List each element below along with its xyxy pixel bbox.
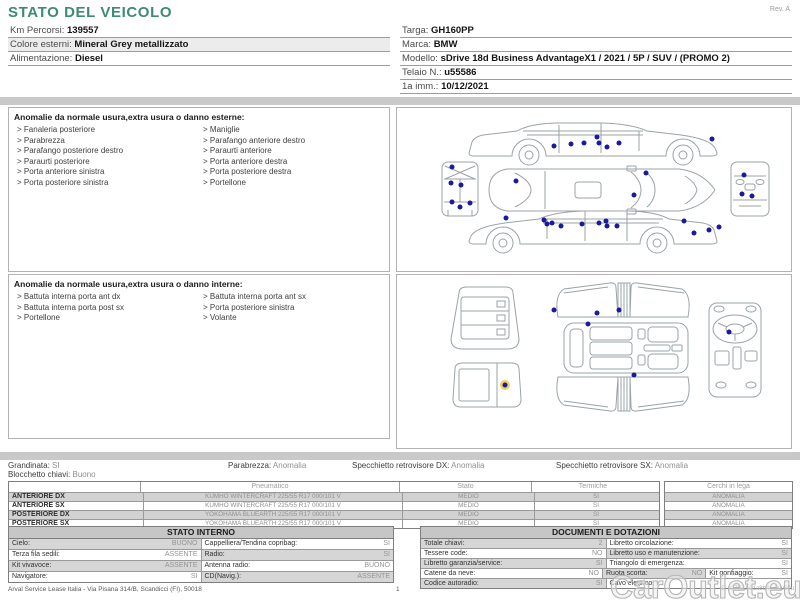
info-value: 139557	[67, 25, 99, 36]
info-value: GH160PP	[431, 25, 474, 36]
table-row: Tessere code:NO Libretto uso e manutenzi…	[421, 548, 791, 558]
stato-interno-table: STATO INTERNO Cielo:BUONO Cappelliera/Te…	[8, 526, 394, 583]
cell-label: Tessere code:	[424, 549, 468, 558]
tyre-table: Pneumatico Stato Termiche ANTERIORE DX K…	[8, 481, 660, 529]
cerchi-row: ANOMALIA	[665, 492, 792, 501]
cerchi-value: ANOMALIA	[665, 493, 792, 501]
summary-value: Anomalia	[451, 461, 484, 470]
page-title: STATO DEL VEICOLO	[8, 4, 172, 21]
summary-label: Grandinata:	[8, 461, 50, 470]
tyre-stato: MEDIO	[403, 502, 535, 510]
vehicle-info-left: Km Percorsi: 139557 Colore esterni: Mine…	[8, 24, 390, 66]
tyre-termiche: SI	[535, 493, 657, 501]
stato-interno-header: STATO INTERNO	[8, 526, 394, 538]
cell-label: Catene da neve:	[424, 569, 475, 578]
cerchi-table-header: Cerchi in lega	[665, 482, 792, 492]
interior-anomalies-column-right: Battuta interna porta ant sx Porta poste…	[203, 292, 389, 324]
cerchi-row: ANOMALIA	[665, 510, 792, 519]
table-cell: Codice autoradio:SI	[421, 579, 607, 588]
cell-value: SI	[781, 549, 788, 558]
tyre-row: ANTERIORE SX KUMHO WINTERCRAFT 225/55 R1…	[9, 501, 659, 510]
cell-label: Totale chiavi:	[424, 539, 464, 548]
table-cell: Terza fila sedili:ASSENTE	[9, 550, 202, 560]
anomaly-item: Battuta interna porta ant dx	[17, 292, 203, 303]
interior-car-diagram	[397, 275, 789, 446]
interior-anomalies-heading: Anomalie da normale usura,extra usura o …	[9, 275, 389, 292]
info-value: 10/12/2021	[441, 81, 489, 92]
cell-value: SI	[383, 539, 390, 549]
info-row-targa: Targa: GH160PP	[400, 24, 792, 38]
footer-page-number: 1	[396, 586, 400, 593]
table-cell: CD(Navig.):ASSENTE	[202, 572, 394, 582]
tyre-col-pneumatico: Pneumatico	[141, 482, 400, 492]
cell-value: NO	[589, 569, 600, 578]
anomaly-item: Fanaleria posteriore	[17, 125, 203, 136]
cell-value: SI	[781, 539, 788, 548]
cell-label: Libretto circolazione:	[610, 539, 674, 548]
anomaly-item: Maniglie	[203, 125, 389, 136]
cell-label: CD(Navig.):	[205, 572, 242, 582]
table-cell: Libretto garanzia/service:SI	[421, 559, 607, 568]
interior-anomalies-box: Anomalie da normale usura,extra usura o …	[8, 274, 390, 439]
summary-blocchetto-chiavi: Blocchetto chiavi: Buono	[8, 470, 96, 479]
cell-value: 2	[599, 539, 603, 548]
table-cell: Libretto uso e manutenzione:SI	[607, 549, 792, 558]
caroutlet-watermark: CarOutlet.eu	[610, 569, 800, 600]
tyre-table-header: Pneumatico Stato Termiche	[9, 482, 659, 492]
cell-value: ASSENTE	[357, 572, 390, 582]
info-label: 1a imm.:	[402, 81, 438, 92]
table-row: Cielo:BUONO Cappelliera/Tendina copribag…	[9, 539, 393, 549]
table-cell: Radio:SI	[202, 550, 394, 560]
exterior-anomalies-column-left: Fanaleria posteriore Parabrezza Parafang…	[17, 125, 203, 188]
info-value: Mineral Grey metallizzato	[74, 39, 188, 50]
table-cell: Cappelliera/Tendina copribag:SI	[202, 539, 394, 549]
exterior-anomalies-list: Fanaleria posteriore Parabrezza Parafang…	[9, 125, 389, 188]
exterior-diagram-box	[396, 107, 792, 272]
info-value: sDrive 18d Business AdvantageX1 / 2021 /…	[441, 53, 730, 64]
anomaly-item: Paraurti posteriore	[17, 157, 203, 168]
separator-bar-bottom	[0, 452, 800, 460]
table-row: Terza fila sedili:ASSENTE Radio:SI	[9, 549, 393, 560]
door-band-bottom	[557, 377, 689, 411]
cell-label: Libretto garanzia/service:	[424, 559, 502, 568]
vehicle-info-right: Targa: GH160PP Marca: BMW Modello: sDriv…	[400, 24, 792, 94]
tyre-row: ANTERIORE DX KUMHO WINTERCRAFT 225/55 R1…	[9, 492, 659, 501]
cell-value: BUONO	[172, 539, 198, 549]
info-label: Modello:	[402, 53, 438, 64]
tyre-stato: MEDIO	[403, 493, 535, 501]
table-row: Libretto garanzia/service:SI Triangolo d…	[421, 558, 791, 568]
cell-value: SI	[781, 559, 788, 568]
anomaly-item: Paraurti anteriore	[203, 146, 389, 157]
trunk-lid-view-drawing	[453, 363, 521, 407]
anomaly-item: Porta posteriore sinistra	[17, 178, 203, 189]
anomaly-item: Porta anteriore sinistra	[17, 167, 203, 178]
summary-label: Blocchetto chiavi:	[8, 470, 70, 479]
table-cell: Cielo:BUONO	[9, 539, 202, 549]
info-label: Alimentazione:	[10, 53, 72, 64]
summary-label: Specchietto retrovisore SX:	[556, 461, 653, 470]
cabin-plan-drawing	[557, 283, 689, 411]
door-band-top	[557, 283, 689, 317]
exterior-anomalies-column-right: Maniglie Parafango anteriore destro Para…	[203, 125, 389, 188]
cell-label: Navigatore:	[12, 572, 48, 582]
anomaly-item: Porta anteriore destra	[203, 157, 389, 168]
anomaly-item: Porta posteriore sinistra	[203, 303, 389, 314]
footer-company: Arval Service Lease Italia - Via Pisana …	[8, 586, 202, 593]
tyre-col-termiche: Termiche	[532, 482, 654, 492]
tyre-position: POSTERIORE DX	[9, 511, 144, 519]
anomaly-item: Battuta interna porta post sx	[17, 303, 203, 314]
tyre-pneumatico: KUMHO WINTERCRAFT 225/55 R17 000/101 V	[144, 493, 403, 501]
info-row-marca: Marca: BMW	[400, 38, 792, 52]
exterior-anomalies-heading: Anomalie da normale usura,extra usura o …	[9, 108, 389, 125]
vehicle-report-page: STATO DEL VEICOLO Rev. A Km Percorsi: 13…	[0, 0, 800, 600]
cell-label: Cielo:	[12, 539, 30, 549]
info-value: u55586	[444, 67, 476, 78]
cell-value: ASSENTE	[165, 561, 198, 571]
info-row-alimentazione: Alimentazione: Diesel	[8, 52, 390, 66]
tyre-col-position	[9, 482, 141, 492]
cell-value: BUONO	[364, 561, 390, 571]
cerchi-value: ANOMALIA	[665, 511, 792, 519]
info-row-colore: Colore esterni: Mineral Grey metallizzat…	[8, 38, 390, 52]
anomaly-item: Porta posteriore destra	[203, 167, 389, 178]
tyre-pneumatico: YOKOHAMA BLUEARTH 225/55 R17 000/101 V	[144, 511, 403, 519]
tyre-stato: MEDIO	[403, 511, 535, 519]
separator-bar-top	[0, 97, 800, 105]
cell-value: SI	[596, 559, 603, 568]
plan-view-drawing	[489, 166, 715, 214]
cell-label: Libretto uso e manutenzione:	[610, 549, 700, 558]
side-view-top-drawing	[469, 123, 717, 165]
cerchi-table: Cerchi in lega ANOMALIA ANOMALIA ANOMALI…	[664, 481, 793, 529]
summary-grandinata: Grandinata: SI	[8, 461, 60, 470]
cell-label: Antenna radio:	[205, 561, 251, 571]
cell-value: ASSENTE	[165, 550, 198, 560]
table-cell: Libretto circolazione:SI	[607, 539, 792, 548]
anomaly-item: Parafango anteriore destro	[203, 136, 389, 147]
cell-value: SI	[596, 579, 603, 588]
table-cell: Catene da neve:NO	[421, 569, 603, 578]
info-label: Telaio N.:	[402, 67, 442, 78]
tyre-row: POSTERIORE DX YOKOHAMA BLUEARTH 225/55 R…	[9, 510, 659, 519]
cell-label: Terza fila sedili:	[12, 550, 60, 560]
anomaly-item: Parafango posteriore destro	[17, 146, 203, 157]
summary-value: Anomalia	[273, 461, 306, 470]
exterior-car-diagram	[397, 108, 789, 269]
table-row: Kit vivavoce:ASSENTE Antenna radio:BUONO	[9, 560, 393, 571]
info-row-modello: Modello: sDrive 18d Business AdvantageX1…	[400, 52, 792, 66]
summary-parabrezza: Parabrezza: Anomalia	[228, 461, 306, 470]
trunk-open-view-drawing	[451, 287, 519, 349]
cell-value: NO	[592, 549, 603, 558]
summary-value: Anomalia	[655, 461, 688, 470]
anomaly-item: Portellone	[17, 313, 203, 324]
info-value: BMW	[434, 39, 458, 50]
info-row-telaio: Telaio N.: u55586	[400, 66, 792, 80]
exterior-anomalies-box: Anomalie da normale usura,extra usura o …	[8, 107, 390, 272]
anomaly-item: Parabrezza	[17, 136, 203, 147]
table-cell: Navigatore:SI	[9, 572, 202, 582]
summary-specchietto-dx: Specchietto retrovisore DX: Anomalia	[352, 461, 485, 470]
interior-diagram-box	[396, 274, 792, 449]
documenti-header: DOCUMENTI E DOTAZIONI	[420, 526, 792, 538]
tyre-termiche: SI	[535, 511, 657, 519]
cerchi-row: ANOMALIA	[665, 501, 792, 510]
table-cell: Kit vivavoce:ASSENTE	[9, 561, 202, 571]
tyre-position: ANTERIORE DX	[9, 493, 144, 501]
anomaly-item: Battuta interna porta ant sx	[203, 292, 389, 303]
info-value: Diesel	[75, 53, 103, 64]
cell-value: SI	[191, 572, 198, 582]
summary-label: Specchietto retrovisore DX:	[352, 461, 449, 470]
dashboard-view-drawing	[709, 303, 761, 397]
summary-value: Buono	[73, 470, 96, 479]
tyre-termiche: SI	[535, 502, 657, 510]
table-cell: Antenna radio:BUONO	[202, 561, 394, 571]
tyre-pneumatico: KUMHO WINTERCRAFT 225/55 R17 000/101 V	[144, 502, 403, 510]
info-row-km: Km Percorsi: 139557	[8, 24, 390, 38]
interior-anomalies-column-left: Battuta interna porta ant dx Battuta int…	[17, 292, 203, 324]
table-cell: Triangolo di emergenza:SI	[607, 559, 792, 568]
summary-specchietto-sx: Specchietto retrovisore SX: Anomalia	[556, 461, 688, 470]
trunk-lid-highlight-dot	[500, 380, 510, 390]
cell-label: Radio:	[205, 550, 225, 560]
cell-value: SI	[383, 550, 390, 560]
cerchi-col-header: Cerchi in lega	[665, 482, 792, 492]
front-view-drawing	[731, 162, 769, 216]
summary-value: SI	[52, 461, 60, 470]
cell-label: Triangolo di emergenza:	[610, 559, 685, 568]
cell-label: Cappelliera/Tendina copribag:	[205, 539, 298, 549]
info-label: Colore esterni:	[10, 39, 72, 50]
table-cell: Totale chiavi:2	[421, 539, 607, 548]
anomaly-item: Portellone	[203, 178, 389, 189]
interior-anomalies-list: Battuta interna porta ant dx Battuta int…	[9, 292, 389, 324]
info-label: Targa:	[402, 25, 428, 36]
summary-label: Parabrezza:	[228, 461, 271, 470]
anomaly-item: Volante	[203, 313, 389, 324]
tyre-col-stato: Stato	[400, 482, 532, 492]
stato-interno-body: Cielo:BUONO Cappelliera/Tendina copribag…	[8, 538, 394, 583]
table-row: Totale chiavi:2 Libretto circolazione:SI	[421, 539, 791, 548]
table-row: Navigatore:SI CD(Navig.):ASSENTE	[9, 571, 393, 582]
cell-label: Codice autoradio:	[424, 579, 479, 588]
tyre-position: ANTERIORE SX	[9, 502, 144, 510]
table-cell: Tessere code:NO	[421, 549, 607, 558]
info-label: Km Percorsi:	[10, 25, 64, 36]
revision-label: Rev. A	[770, 6, 790, 13]
cell-label: Kit vivavoce:	[12, 561, 51, 571]
info-label: Marca:	[402, 39, 431, 50]
cerchi-value: ANOMALIA	[665, 502, 792, 510]
info-row-immatricolazione: 1a imm.: 10/12/2021	[400, 80, 792, 94]
